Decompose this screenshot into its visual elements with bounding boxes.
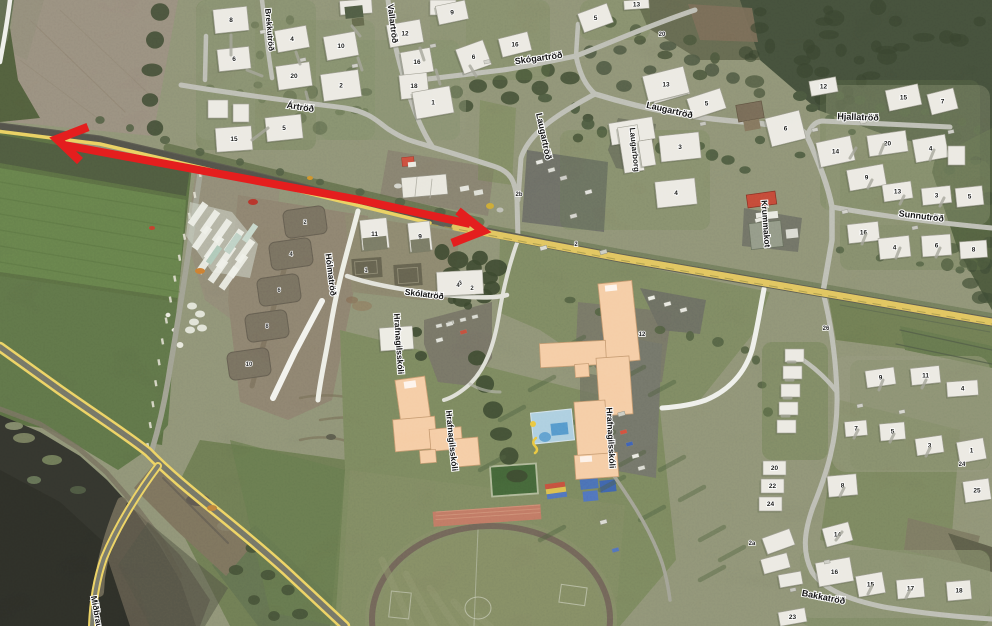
svg-text:2b: 2b xyxy=(515,192,522,198)
svg-text:Hjallatröð: Hjallatröð xyxy=(837,111,879,122)
svg-text:26: 26 xyxy=(823,326,830,332)
svg-text:2a: 2a xyxy=(749,541,756,547)
svg-text:24: 24 xyxy=(959,462,966,468)
svg-text:20: 20 xyxy=(659,32,666,38)
svg-text:12: 12 xyxy=(639,332,646,338)
